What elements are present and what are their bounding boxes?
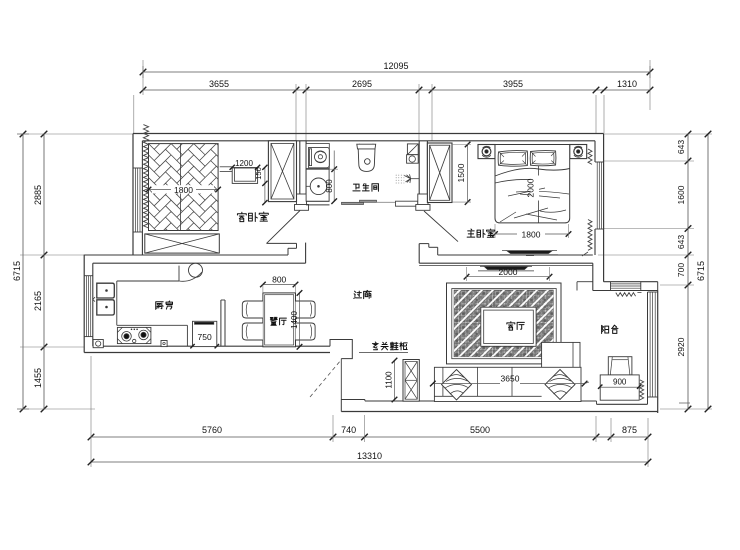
svg-text:2920: 2920: [676, 337, 686, 356]
svg-text:3650: 3650: [501, 374, 520, 384]
svg-text:740: 740: [341, 425, 356, 435]
svg-text:800: 800: [272, 275, 286, 285]
svg-text:150: 150: [254, 167, 263, 180]
svg-text:1200: 1200: [235, 159, 253, 168]
svg-text:643: 643: [676, 140, 686, 154]
svg-text:6715: 6715: [696, 261, 706, 281]
svg-text:13310: 13310: [357, 451, 382, 461]
svg-text:1310: 1310: [617, 79, 637, 89]
svg-text:2165: 2165: [33, 291, 43, 311]
svg-text:643: 643: [676, 235, 686, 249]
svg-text:800: 800: [325, 179, 334, 193]
svg-text:2695: 2695: [352, 79, 372, 89]
svg-text:1455: 1455: [33, 368, 43, 388]
svg-text:2000: 2000: [526, 178, 536, 197]
svg-text:2000: 2000: [499, 267, 518, 277]
svg-text:700: 700: [676, 263, 686, 277]
svg-text:750: 750: [198, 332, 212, 342]
svg-text:875: 875: [622, 425, 637, 435]
svg-text:1800: 1800: [174, 185, 193, 195]
svg-text:3655: 3655: [209, 79, 229, 89]
svg-text:900: 900: [613, 378, 627, 387]
svg-text:3955: 3955: [503, 79, 523, 89]
svg-text:12095: 12095: [383, 61, 408, 71]
svg-text:1600: 1600: [676, 185, 686, 204]
svg-text:2885: 2885: [33, 185, 43, 205]
svg-text:5760: 5760: [202, 425, 222, 435]
svg-text:5500: 5500: [470, 425, 490, 435]
svg-text:1100: 1100: [385, 371, 394, 389]
svg-text:1500: 1500: [456, 163, 466, 182]
svg-text:6715: 6715: [12, 261, 22, 281]
svg-text:1800: 1800: [522, 229, 541, 239]
svg-text:1400: 1400: [290, 311, 299, 329]
